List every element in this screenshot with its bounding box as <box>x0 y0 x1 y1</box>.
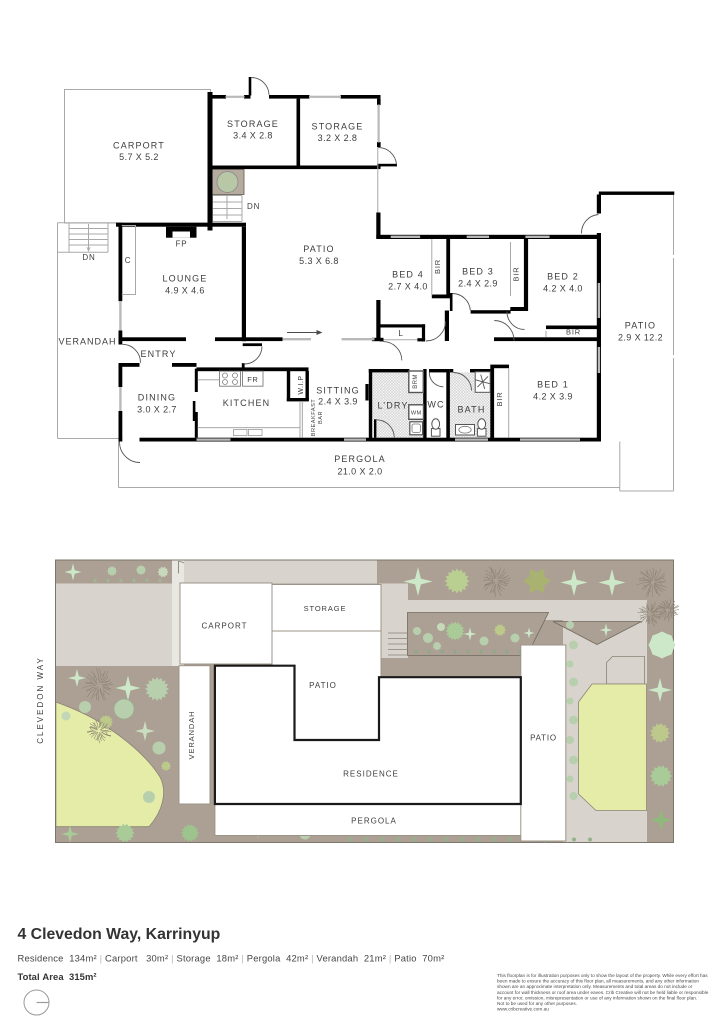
svg-text:21.0 X 2.0: 21.0 X 2.0 <box>337 467 382 477</box>
svg-text:C: C <box>125 256 132 265</box>
svg-text:KITCHEN: KITCHEN <box>223 398 271 408</box>
svg-text:BIR: BIR <box>433 259 442 274</box>
svg-text:PATIO: PATIO <box>625 321 656 331</box>
svg-text:Residence 134m² | Carport 3: Residence 134m² | Carport 30m² | Storage… <box>18 953 445 964</box>
svg-text:ENTRY: ENTRY <box>140 349 176 359</box>
svg-text:DINING: DINING <box>138 393 176 403</box>
svg-text:CLEVEDON WAY: CLEVEDON WAY <box>36 656 45 744</box>
svg-text:VERANDAH: VERANDAH <box>187 711 196 760</box>
svg-text:This floorplan is for illustra: This floorplan is for illustration purpo… <box>497 973 708 978</box>
svg-text:FP: FP <box>176 240 188 249</box>
svg-text:PATIO: PATIO <box>530 734 557 743</box>
svg-text:FR: FR <box>247 375 258 384</box>
svg-text:been made to ensure the accura: been made to ensure the accuracy of this… <box>497 979 699 984</box>
svg-text:3.0 X 2.7: 3.0 X 2.7 <box>137 405 177 415</box>
svg-text:LOUNGE: LOUNGE <box>163 274 208 284</box>
svg-text:BIR: BIR <box>495 392 504 407</box>
svg-text:2.9 X 12.2: 2.9 X 12.2 <box>618 333 663 343</box>
svg-text:PERGOLA: PERGOLA <box>351 817 397 826</box>
svg-text:SITTING: SITTING <box>316 386 360 396</box>
svg-text:L’DRY: L’DRY <box>377 401 408 411</box>
svg-text:PATIO: PATIO <box>303 244 334 254</box>
svg-text:2.4 X 3.9: 2.4 X 3.9 <box>318 397 358 407</box>
svg-text:4.2 X 4.0: 4.2 X 4.0 <box>543 284 583 294</box>
svg-text:5.7 X 5.2: 5.7 X 5.2 <box>119 152 159 162</box>
svg-text:3.2 X 2.8: 3.2 X 2.8 <box>318 133 358 143</box>
svg-text:2.4 X 2.9: 2.4 X 2.9 <box>458 279 498 289</box>
svg-text:PATIO: PATIO <box>309 681 337 690</box>
svg-text:DN: DN <box>247 202 260 211</box>
svg-text:2.7 X 4.0: 2.7 X 4.0 <box>388 282 428 292</box>
svg-text:BRM: BRM <box>413 374 419 389</box>
svg-text:WM: WM <box>411 410 422 416</box>
svg-text:CARPORT: CARPORT <box>202 622 248 631</box>
svg-text:W.I.P: W.I.P <box>298 375 305 394</box>
svg-text:WC: WC <box>427 400 444 410</box>
svg-text:RESIDENCE: RESIDENCE <box>343 770 399 779</box>
svg-text:BREAKFAST: BREAKFAST <box>311 399 317 437</box>
svg-text:DN: DN <box>82 253 95 262</box>
svg-text:STORAGE: STORAGE <box>304 604 347 613</box>
svg-text:BIR: BIR <box>512 267 521 282</box>
svg-text:4.9 X 4.6: 4.9 X 4.6 <box>165 286 205 296</box>
svg-text:for any error, omission, misre: for any error, omission, misrepresentati… <box>497 995 697 1000</box>
svg-text:BED 4: BED 4 <box>392 270 424 280</box>
svg-text:L: L <box>398 329 403 338</box>
svg-text:BATH: BATH <box>458 405 486 415</box>
svg-text:VERANDAH: VERANDAH <box>58 337 116 347</box>
svg-text:STORAGE: STORAGE <box>227 119 279 129</box>
svg-text:CARPORT: CARPORT <box>113 141 165 151</box>
svg-text:4 Clevedon Way, Karrinyup: 4 Clevedon Way, Karrinyup <box>18 926 221 943</box>
svg-text:3.4 X 2.8: 3.4 X 2.8 <box>233 131 273 141</box>
svg-text:www.cribcreative.com.au: www.cribcreative.com.au <box>497 1007 549 1012</box>
svg-text:shown are an approximate inter: shown are an approximate interpretation … <box>497 984 693 989</box>
svg-text:PERGOLA: PERGOLA <box>334 454 386 464</box>
svg-text:Total Area 315m²: Total Area 315m² <box>18 971 97 982</box>
svg-text:5.3 X 6.8: 5.3 X 6.8 <box>299 256 339 266</box>
svg-text:BED 3: BED 3 <box>462 267 494 277</box>
svg-text:BED 1: BED 1 <box>537 380 569 390</box>
svg-text:account for wall thickness or: account for wall thickness or roof area … <box>497 990 709 995</box>
svg-text:4.2 X 3.9: 4.2 X 3.9 <box>533 392 573 402</box>
svg-text:Not to be used for any other p: Not to be used for any other purposes. <box>497 1001 577 1006</box>
svg-text:STORAGE: STORAGE <box>312 122 364 132</box>
svg-text:BAR: BAR <box>318 411 324 424</box>
svg-text:BED 2: BED 2 <box>547 272 579 282</box>
